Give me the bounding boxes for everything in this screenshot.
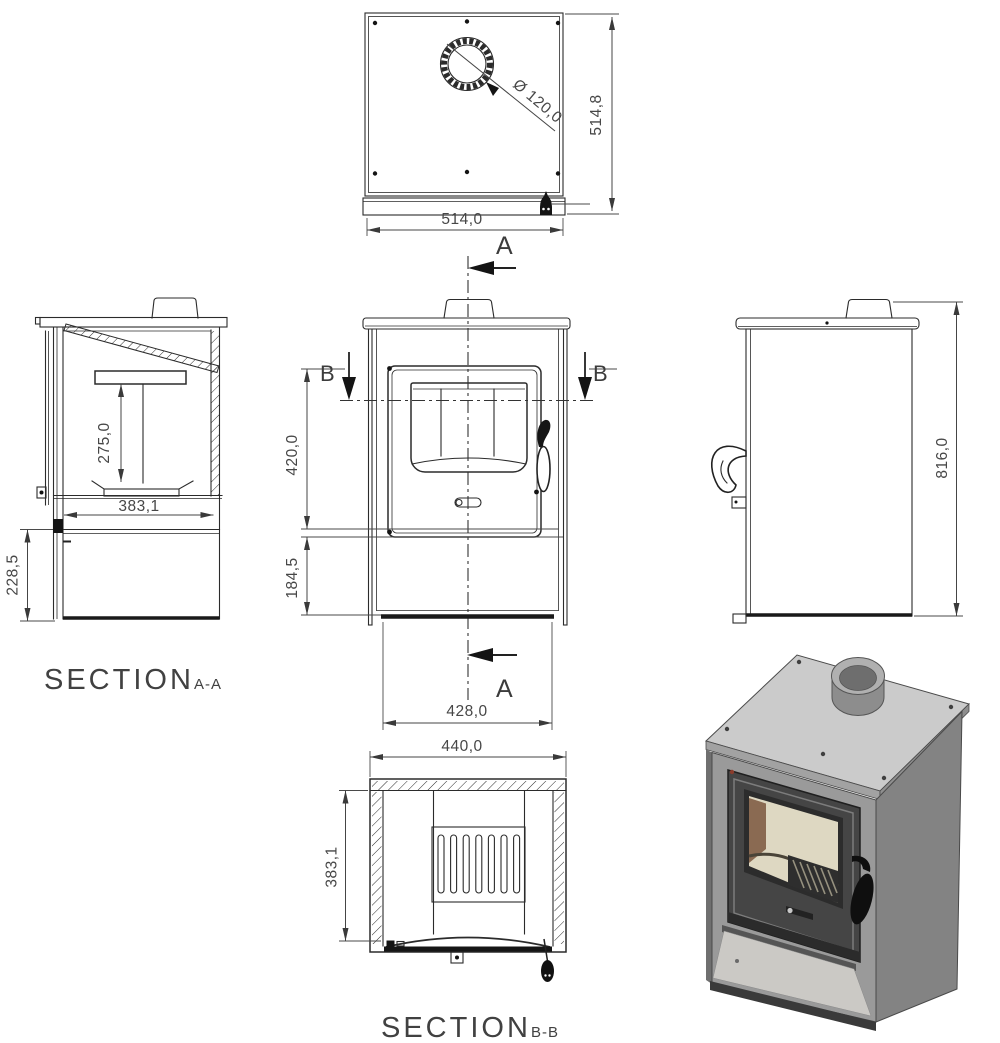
right-wall-hatch-bb: [555, 792, 565, 944]
isometric-render: [706, 655, 969, 1031]
top-plate-front: [363, 318, 570, 329]
cut-label-a-top: A: [496, 232, 513, 260]
dim-overall-height: 816,0: [934, 437, 951, 478]
hinge-bottom: [387, 530, 392, 535]
right-wall-hatch: [211, 331, 219, 495]
cut-label-a-bottom: A: [496, 675, 513, 703]
dim-firebox-height: 275,0: [96, 422, 113, 463]
dim-base-height: 184,5: [284, 557, 301, 598]
grate-box: [432, 827, 525, 902]
dim-top-width: 514,0: [441, 211, 482, 228]
cut-label-b-left: B: [320, 361, 335, 386]
stove-door-front: [387, 366, 550, 537]
door-window: [411, 383, 527, 472]
grate-slots: [438, 835, 520, 893]
front-view: B B 420,0 184,5 428,0 A: [284, 256, 617, 730]
section-aa-view: 275,0 383,1 228,5 SECTION A-A: [5, 298, 228, 696]
side-body: [746, 329, 912, 616]
dim-section-depth: 383,1: [324, 846, 341, 887]
window-lip-curve: [412, 458, 526, 464]
flue-collar-3d: [832, 658, 885, 716]
flue-collar-front: [444, 300, 494, 319]
flue-collar-side: [846, 300, 892, 319]
stove-drawing-canvas: Ø 120,0 514,8 514,0 A: [0, 0, 1000, 1043]
dim-compartment-height: 228,5: [5, 554, 22, 595]
section-aa-name: A-A: [194, 676, 222, 693]
left-wall-hatch: [372, 792, 382, 944]
section-cut-a-top: A: [468, 232, 516, 275]
door-handle-front: [537, 447, 550, 492]
hinge-mark-3d: [730, 770, 734, 774]
section-cut-a-bottom: A: [467, 648, 517, 703]
air-knob-side: [732, 497, 746, 508]
dim-firebox-width: 383,1: [118, 498, 159, 515]
section-bb-name: B-B: [531, 1024, 559, 1041]
glass-curve: [386, 938, 550, 948]
smoke-shelf: [95, 371, 186, 384]
hinge-top: [387, 366, 392, 371]
dim-upper-height: 420,0: [284, 434, 301, 475]
section-aa-title: SECTION: [44, 664, 194, 696]
technical-drawing-page: Ø 120,0 514,8 514,0 A: [0, 0, 1000, 1043]
door-handle-hook: [537, 420, 550, 447]
dim-body-width: 428,0: [446, 703, 487, 720]
back-wall-hatch: [372, 781, 564, 790]
dim-section-width: 440,0: [441, 738, 482, 755]
section-bb-title: SECTION: [381, 1012, 531, 1043]
section-bb-view: 440,0 383,1: [324, 738, 567, 1043]
section-cut-b: B B: [301, 352, 617, 401]
side-view: 816,0: [712, 300, 963, 624]
hinge-block: [53, 519, 63, 533]
dim-top-depth: 514,8: [588, 94, 605, 135]
cut-label-b-right: B: [593, 361, 608, 386]
door-handle-side: [712, 446, 746, 492]
top-view: Ø 120,0 514,8 514,0 A: [363, 13, 619, 275]
